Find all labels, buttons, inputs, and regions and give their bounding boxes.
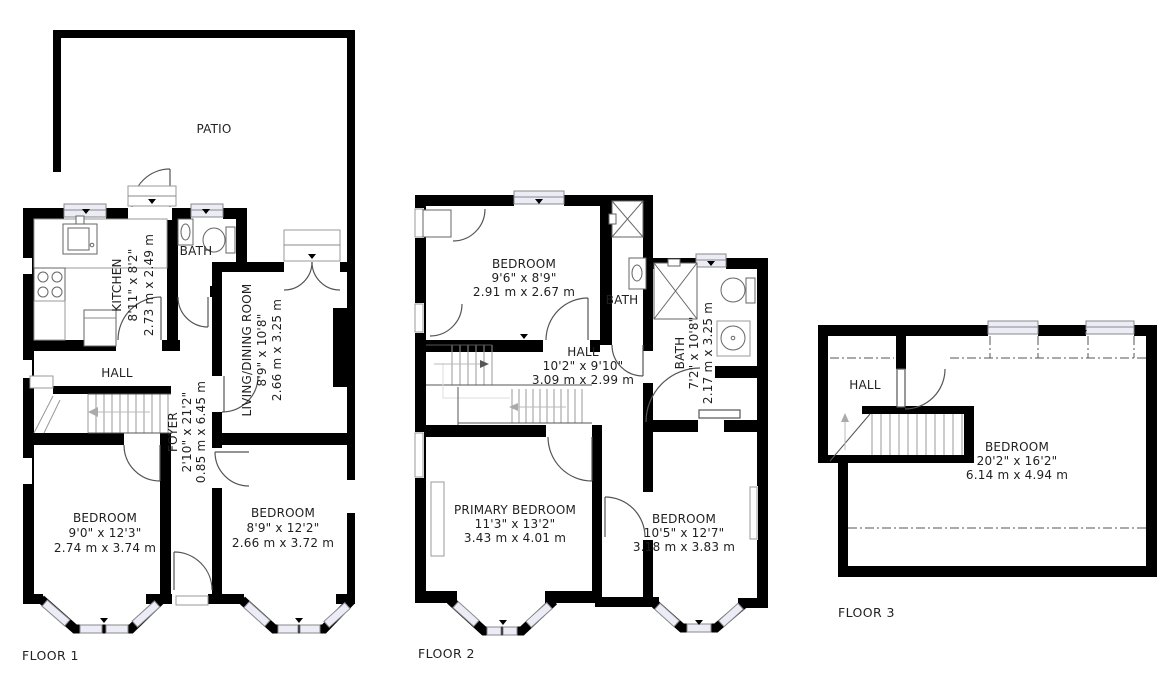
svg-text:KITCHEN: KITCHEN bbox=[110, 258, 124, 311]
floor-3-markers bbox=[1077, 330, 1087, 571]
floor-1-bay-window-right bbox=[242, 600, 351, 633]
room-label-primary-bedroom: PRIMARY BEDROOM 11'3" x 13'2" 3.43 m x 4… bbox=[454, 503, 576, 545]
floor-2-plan: BEDROOM 9'6" x 8'9" 2.91 m x 2.67 m BATH… bbox=[415, 191, 768, 661]
room-label-hall: HALL bbox=[101, 366, 133, 380]
svg-text:8'9" x 12'2": 8'9" x 12'2" bbox=[247, 521, 320, 535]
floor-3-title: FLOOR 3 bbox=[838, 605, 895, 620]
floor-1-stairs bbox=[30, 376, 171, 433]
floor-2-bay-window-left bbox=[450, 600, 554, 635]
floor-2-bath-fixtures bbox=[609, 201, 755, 356]
svg-text:2.66 m x 3.72 m: 2.66 m x 3.72 m bbox=[232, 536, 334, 550]
svg-text:9'6" x 8'9": 9'6" x 8'9" bbox=[491, 271, 556, 285]
svg-text:2.91 m x 2.67 m: 2.91 m x 2.67 m bbox=[473, 285, 575, 299]
room-label-bedroom-3: BEDROOM 20'2" x 16'2" 6.14 m x 4.94 m bbox=[966, 440, 1068, 482]
svg-text:BEDROOM: BEDROOM bbox=[652, 512, 716, 526]
floorplan-canvas: PATIO KITCHEN 8'11" x 8'2" 2.73 m x 2.49… bbox=[0, 0, 1168, 686]
svg-text:BATH: BATH bbox=[673, 337, 687, 370]
room-label-bedroom-right: BEDROOM 8'9" x 12'2" 2.66 m x 3.72 m bbox=[232, 506, 334, 550]
svg-text:2.73 m x 2.49 m: 2.73 m x 2.49 m bbox=[142, 234, 156, 336]
room-label-hall-3: HALL bbox=[849, 378, 881, 392]
floor-3-plan: HALL BEDROOM 20'2" x 16'2" 6.14 m x 4.94… bbox=[818, 321, 1157, 620]
svg-text:0.85 m x 6.45 m: 0.85 m x 6.45 m bbox=[194, 381, 208, 483]
floor-1-title: FLOOR 1 bbox=[22, 648, 79, 663]
svg-text:2'10" x 21'2": 2'10" x 21'2" bbox=[180, 392, 194, 473]
svg-text:LIVING/DINING ROOM: LIVING/DINING ROOM bbox=[240, 284, 254, 417]
floor-2-bay-window-right bbox=[655, 603, 744, 632]
svg-text:BEDROOM: BEDROOM bbox=[492, 257, 556, 271]
svg-text:3.43 m x 4.01 m: 3.43 m x 4.01 m bbox=[464, 531, 566, 545]
floor-3-ceiling-lines bbox=[830, 336, 1146, 528]
svg-text:11'3" x 13'2": 11'3" x 13'2" bbox=[475, 517, 556, 531]
svg-text:2.66 m x 3.25 m: 2.66 m x 3.25 m bbox=[270, 299, 284, 401]
svg-text:7'2" x 10'8": 7'2" x 10'8" bbox=[687, 317, 701, 390]
svg-text:3.18 m x 3.83 m: 3.18 m x 3.83 m bbox=[633, 540, 735, 554]
svg-text:10'2" x 9'10": 10'2" x 9'10" bbox=[543, 359, 624, 373]
svg-text:FOYER: FOYER bbox=[166, 412, 180, 452]
svg-text:9'0" x 12'3": 9'0" x 12'3" bbox=[69, 526, 142, 540]
svg-text:PRIMARY BEDROOM: PRIMARY BEDROOM bbox=[454, 503, 576, 517]
room-label-living-dining: LIVING/DINING ROOM 8'9" x 10'8" 2.66 m x… bbox=[240, 284, 284, 417]
room-label-bedroom-bottom: BEDROOM 10'5" x 12'7" 3.18 m x 3.83 m bbox=[633, 512, 735, 554]
room-label-bedroom-left: BEDROOM 9'0" x 12'3" 2.74 m x 3.74 m bbox=[54, 511, 156, 555]
svg-text:3.09 m x 2.99 m: 3.09 m x 2.99 m bbox=[532, 373, 634, 387]
svg-text:6.14 m x 4.94 m: 6.14 m x 4.94 m bbox=[966, 468, 1068, 482]
svg-text:10'5" x 12'7": 10'5" x 12'7" bbox=[644, 526, 725, 540]
room-label-patio: PATIO bbox=[196, 122, 231, 136]
floor-3-stairs bbox=[830, 413, 962, 461]
floor-1-bay-window-left bbox=[41, 599, 161, 633]
room-label-foyer: FOYER 2'10" x 21'2" 0.85 m x 6.45 m bbox=[166, 381, 208, 483]
svg-text:HALL: HALL bbox=[567, 345, 599, 359]
svg-text:8'11" x 8'2": 8'11" x 8'2" bbox=[126, 249, 140, 322]
svg-text:20'2" x 16'2": 20'2" x 16'2" bbox=[977, 454, 1058, 468]
room-label-bath: BATH bbox=[180, 244, 213, 258]
svg-text:BEDROOM: BEDROOM bbox=[985, 440, 1049, 454]
svg-text:BEDROOM: BEDROOM bbox=[73, 511, 137, 525]
svg-text:8'9" x 10'8": 8'9" x 10'8" bbox=[255, 314, 269, 387]
room-label-bath-small: BATH bbox=[606, 293, 639, 307]
room-label-bedroom-top: BEDROOM 9'6" x 8'9" 2.91 m x 2.67 m bbox=[473, 257, 575, 299]
floor-1-plan: PATIO KITCHEN 8'11" x 8'2" 2.73 m x 2.49… bbox=[22, 30, 356, 663]
svg-text:2.74 m x 3.74 m: 2.74 m x 3.74 m bbox=[54, 541, 156, 555]
floor-2-title: FLOOR 2 bbox=[418, 646, 475, 661]
svg-text:BEDROOM: BEDROOM bbox=[251, 506, 315, 520]
floor-3-doors bbox=[897, 369, 945, 409]
svg-text:2.17 m x 3.25 m: 2.17 m x 3.25 m bbox=[701, 302, 715, 404]
